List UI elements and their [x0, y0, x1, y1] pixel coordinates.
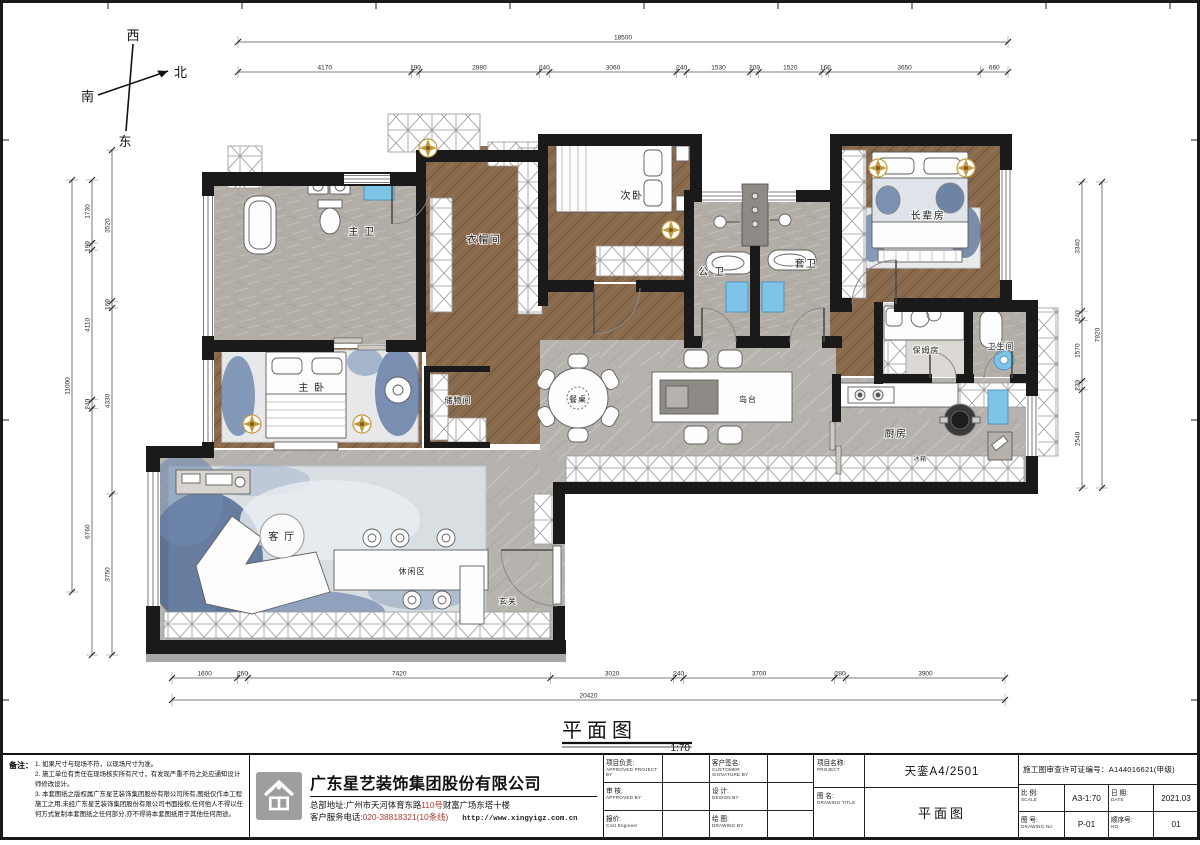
window-elder-right: [1000, 170, 1012, 280]
window-bath-top-2: [768, 190, 796, 202]
dishwasher: [988, 390, 1008, 424]
room-label-elder-bedroom: 长辈房: [911, 209, 946, 222]
window-bay-upper: [202, 196, 214, 336]
notes-heading: 备注：: [9, 760, 33, 835]
ceiling-light-icon: [662, 221, 680, 239]
scale-value: A3-1:70: [1064, 785, 1108, 811]
company-address: 总部地址:广州市天河体育东路110号财富广场东塔十楼: [310, 799, 597, 811]
field-value: [767, 755, 814, 782]
company-website: http://www.xingyigz.com.cn: [462, 815, 577, 823]
room-label-fridge: 冰箱: [913, 455, 926, 463]
field-cost-engineer: 报价:Cost Engineer: [604, 810, 662, 837]
company-phone: 客户服务电话:020-38818321(10条线)http://www.xing…: [310, 811, 597, 823]
dim-label: 3750: [105, 567, 112, 582]
dim-label: 7920: [1095, 327, 1102, 342]
title-strip: 备注： 1. 如果尺寸与现场不符，以现场尺寸为准。 2. 施工单位有责任在现场核…: [3, 753, 1197, 837]
dim-label: 3340: [1075, 239, 1082, 254]
kitchen-lower-cabinets: [566, 456, 1024, 482]
dim-label: 18500: [614, 35, 632, 42]
master-bath-toilet: [318, 200, 342, 234]
dim-label: 1530: [711, 65, 726, 72]
dim-label: 280: [835, 671, 846, 678]
kitchen-counter: [836, 383, 958, 407]
dim-label: 1600: [197, 671, 212, 678]
field-value: [767, 782, 814, 809]
company-section: 广东星艺装饰集团股份有限公司 总部地址:广州市天河体育东路110号财富广场东塔十…: [249, 755, 603, 837]
storage-shelf: [430, 374, 448, 440]
ceiling-light-icon: [419, 139, 437, 157]
dim-right-segments: 334024015702302540: [1075, 179, 1089, 491]
living-window-band: [164, 612, 550, 638]
room-label-island: 岛台: [739, 394, 757, 404]
cloakroom-left-wardrobe: [430, 198, 452, 312]
project-name-label: 项目名称:PROJECT: [814, 755, 864, 787]
dim-right-overall: 7920: [1095, 179, 1109, 491]
drawing-name-label: 图 名:DRAWING TITLE: [814, 787, 864, 837]
dim-label: 3520: [105, 218, 112, 233]
scale-label: 比 例:SCALE: [1019, 785, 1064, 811]
ensuite-bath-sink: [762, 282, 784, 312]
window-living-left: [146, 472, 160, 606]
date-value: 2021.03: [1153, 785, 1198, 811]
company-logo-icon: [256, 772, 302, 820]
dim-label: 3020: [605, 671, 620, 678]
dim-label: 4110: [85, 318, 92, 332]
ceiling-light-icon: [243, 415, 261, 433]
room-label-master-bath: 主 卫: [348, 226, 375, 238]
compass-west-label: 西: [126, 28, 139, 43]
dim-label: 3700: [752, 671, 767, 678]
dim-top-overall: 18500: [235, 35, 1011, 49]
field-value: [662, 810, 709, 837]
dim-label: 7420: [392, 671, 407, 678]
project-section: 项目名称:PROJECT 天銮A4/2501 图 名:DRAWING TITLE…: [813, 755, 1018, 837]
field-design: 设 计:DESIGN BY: [709, 782, 767, 809]
room-label-foyer: 玄关: [499, 596, 517, 606]
project-name-value: 天銮A4/2501: [864, 755, 1019, 787]
window-kitchen-right: [1026, 396, 1038, 456]
dim-label: 160: [105, 299, 112, 310]
dim-label: 4330: [105, 393, 112, 408]
dim-label: 160: [820, 65, 831, 72]
tv-console: [176, 470, 250, 494]
dim-label: 200: [749, 65, 760, 72]
right-window-column: [1036, 308, 1058, 456]
dim-bottom-overall: 20420: [169, 693, 1008, 707]
field-value: [662, 782, 709, 809]
compass-north-label: 北: [174, 65, 187, 80]
room-label-storage: 储物间: [445, 395, 472, 405]
floor-corridor: [540, 284, 690, 348]
dim-label: 240: [1075, 310, 1082, 321]
drawing-name-value: 平面图: [864, 787, 1019, 837]
room-label-kitchen: 厨房: [885, 427, 908, 440]
room-label-master-bedroom: 主 卧: [298, 381, 325, 394]
drawing-title-block: 平面图 1:70: [562, 720, 692, 754]
note-line: 1. 如果尺寸与现场不符，以现场尺寸为准。: [35, 760, 245, 770]
storage-shelf-2: [448, 418, 486, 442]
dim-label: 2540: [1075, 431, 1082, 446]
public-bath-sink: [726, 282, 748, 312]
dim-label: 20420: [579, 693, 597, 700]
permit-section: 施工图审查许可证编号：A144016621(甲级) 比 例:SCALE A3-1…: [1018, 755, 1197, 837]
drawing-title: 平面图: [562, 720, 637, 742]
drawing-no-label: 图 号:DRAWING No: [1019, 811, 1064, 837]
dim-label: 240: [676, 65, 687, 72]
room-label-ensuite-bath: 套卫: [795, 257, 818, 270]
dim-label: 3900: [918, 671, 933, 678]
dim-label: 1570: [1075, 343, 1082, 358]
notes-section: 备注： 1. 如果尺寸与现场不符，以现场尺寸为准。 2. 施工单位有责任在现场核…: [3, 755, 249, 837]
signature-fields: 项目负责:APPROVED PROJECT BY 客户签名:CUSTOMER S…: [603, 755, 813, 837]
field-value: [662, 755, 709, 782]
kitchen-mat: [988, 432, 1012, 460]
field-drawing-by: 绘 图:DRAWING BY: [709, 810, 767, 837]
dim-label: 1520: [783, 65, 798, 72]
note-line: 2. 施工单位有责任在现场核实所有尺寸，有发现严重不符之处应通知设计师修改设计。: [35, 770, 245, 790]
dim-bottom-segments: 16002607420302024037002803900: [169, 671, 1008, 685]
seq-no-value: 01: [1153, 811, 1198, 837]
dim-label: 660: [989, 65, 1000, 72]
ceiling-light-icon: [957, 159, 975, 177]
dim-label: 3060: [606, 65, 621, 72]
field-customer-signature: 客户签名:CUSTOMER SIGNATURE BY: [709, 755, 767, 782]
room-label-dining-table: 餐桌: [569, 394, 587, 404]
dim-label: 240: [673, 671, 684, 678]
dim-label: 11000: [65, 377, 72, 395]
dim-label: 240: [539, 65, 550, 72]
second-bedroom-wardrobe: [596, 246, 684, 276]
room-label-nanny-room: 保姆房: [913, 345, 940, 355]
room-label-living-room: 客 厅: [268, 530, 295, 543]
dim-label: 3650: [897, 65, 912, 72]
dim-label: 230: [1075, 380, 1082, 391]
dim-label: 1730: [85, 204, 92, 219]
dim-label: 2880: [472, 65, 487, 72]
dim-left-inner: 352016043303750: [105, 147, 119, 658]
dim-top-segments: 4170190288024030602401530200152016036506…: [235, 65, 1011, 79]
window-bath-top-1: [702, 190, 742, 202]
field-project-lead: 项目负责:APPROVED PROJECT BY: [604, 755, 662, 782]
room-label-toilet: 卫生间: [988, 341, 1015, 351]
room-label-public-bath: 公 卫: [698, 267, 725, 278]
floor-plan-svg: 主 卫 衣帽间 次卧 公 卫 套卫 长辈房 保姆房 卫生间 厨房 冰箱 主 卧 …: [0, 0, 1200, 840]
field-value: [767, 810, 814, 837]
room-label-leisure-area: 休闲区: [399, 566, 426, 576]
dim-left-mid: 173019041102406760: [85, 177, 99, 658]
window-master-bath-top: [344, 174, 390, 184]
compass: 西 北 南 东: [81, 28, 187, 149]
window-bay-lower: [202, 360, 214, 442]
ceiling-light-icon: [353, 415, 371, 433]
room-label-second-bedroom: 次卧: [621, 189, 644, 202]
dim-label: 240: [85, 398, 92, 409]
compass-east-label: 东: [118, 134, 131, 149]
dim-left-overall: 11000: [65, 177, 79, 595]
field-approved: 审 核:APPROVED BY: [604, 782, 662, 809]
dim-label: 6760: [85, 524, 92, 539]
date-label: 日 期:DATE: [1108, 785, 1153, 811]
entry-cabinet: [742, 184, 768, 246]
bathtub: [244, 196, 276, 254]
dim-label: 4170: [318, 65, 333, 72]
permit-number: 施工图审查许可证编号：A144016621(甲级): [1019, 755, 1198, 785]
company-name: 广东星艺装饰集团股份有限公司: [310, 770, 597, 797]
compass-south-label: 南: [81, 89, 94, 104]
seq-no-label: 顺序号:NO.: [1108, 811, 1153, 837]
ceiling-light-icon: [869, 159, 887, 177]
dim-label: 190: [85, 241, 92, 252]
note-line: 3. 本套图纸之版权属广东星艺装饰集团股份有限公司所有,图纸仅作本工程施工之用,…: [35, 790, 245, 820]
drawing-no-value: P-01: [1064, 811, 1108, 837]
room-label-cloakroom: 衣帽间: [467, 233, 502, 246]
dim-label: 260: [237, 671, 248, 678]
dim-label: 190: [410, 65, 421, 72]
drawing-sheet: 主 卫 衣帽间 次卧 公 卫 套卫 长辈房 保姆房 卫生间 厨房 冰箱 主 卧 …: [0, 0, 1200, 840]
balcony-sill: [146, 654, 566, 662]
